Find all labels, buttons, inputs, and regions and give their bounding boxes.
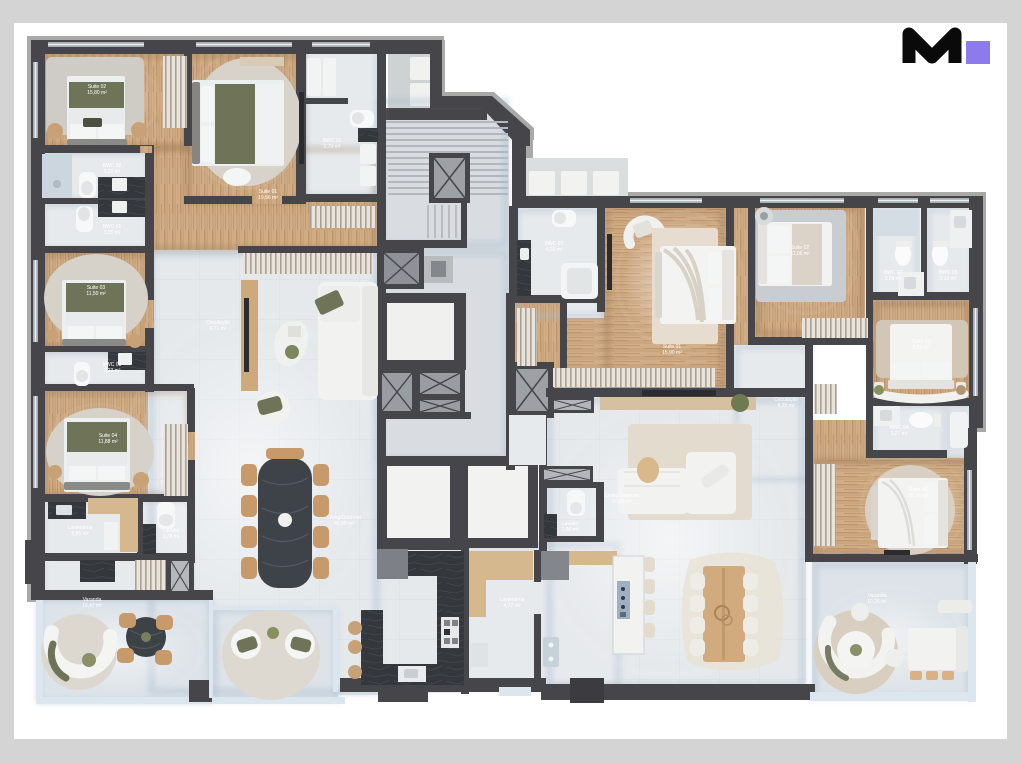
- svg-text:Varanda10,26 m²: Varanda10,26 m²: [867, 593, 887, 605]
- svg-text:Suite 0411,88 m²: Suite 0411,88 m²: [98, 433, 118, 445]
- svg-text:Varanda19,47 m²: Varanda19,47 m²: [82, 597, 102, 609]
- svg-text:BWC 033,19 m²: BWC 033,19 m²: [939, 270, 958, 282]
- svg-text:BWC 043,27 m²: BWC 043,27 m²: [890, 425, 909, 437]
- svg-text:Lavabo1,90 m²: Lavabo1,90 m²: [562, 521, 579, 533]
- svg-text:Suite 0416,33 m²: Suite 0416,33 m²: [908, 487, 928, 499]
- svg-text:Suite 0311,50 m²: Suite 0311,50 m²: [86, 285, 106, 297]
- svg-text:Suite 0119,56 m²: Suite 0119,56 m²: [258, 189, 278, 201]
- svg-text:Suite 0215,80 m²: Suite 0215,80 m²: [87, 84, 107, 96]
- svg-text:BWC 023,20 m²: BWC 023,20 m²: [103, 163, 122, 175]
- svg-text:BWC 023,29 m²: BWC 023,29 m²: [884, 270, 903, 282]
- svg-text:BWC 013,70 m²: BWC 013,70 m²: [323, 138, 342, 150]
- svg-text:Suite 0115,90 m²: Suite 0115,90 m²: [662, 344, 682, 356]
- svg-text:Circulação6,71 m²: Circulação6,71 m²: [206, 320, 230, 332]
- svg-text:Suite 039,80 m²: Suite 039,80 m²: [912, 339, 931, 351]
- svg-text:Suite 0211,06 m²: Suite 0211,06 m²: [790, 245, 810, 257]
- svg-text:Lavabo1,78 m²: Lavabo1,78 m²: [163, 528, 180, 540]
- svg-text:BWC 033,23 m²: BWC 033,23 m²: [103, 362, 122, 374]
- svg-text:Circulação8,25 m²: Circulação8,25 m²: [774, 397, 798, 409]
- svg-text:BWC 014,20 m²: BWC 014,20 m²: [545, 241, 564, 253]
- svg-text:BWC 013,25 m²: BWC 013,25 m²: [103, 224, 122, 236]
